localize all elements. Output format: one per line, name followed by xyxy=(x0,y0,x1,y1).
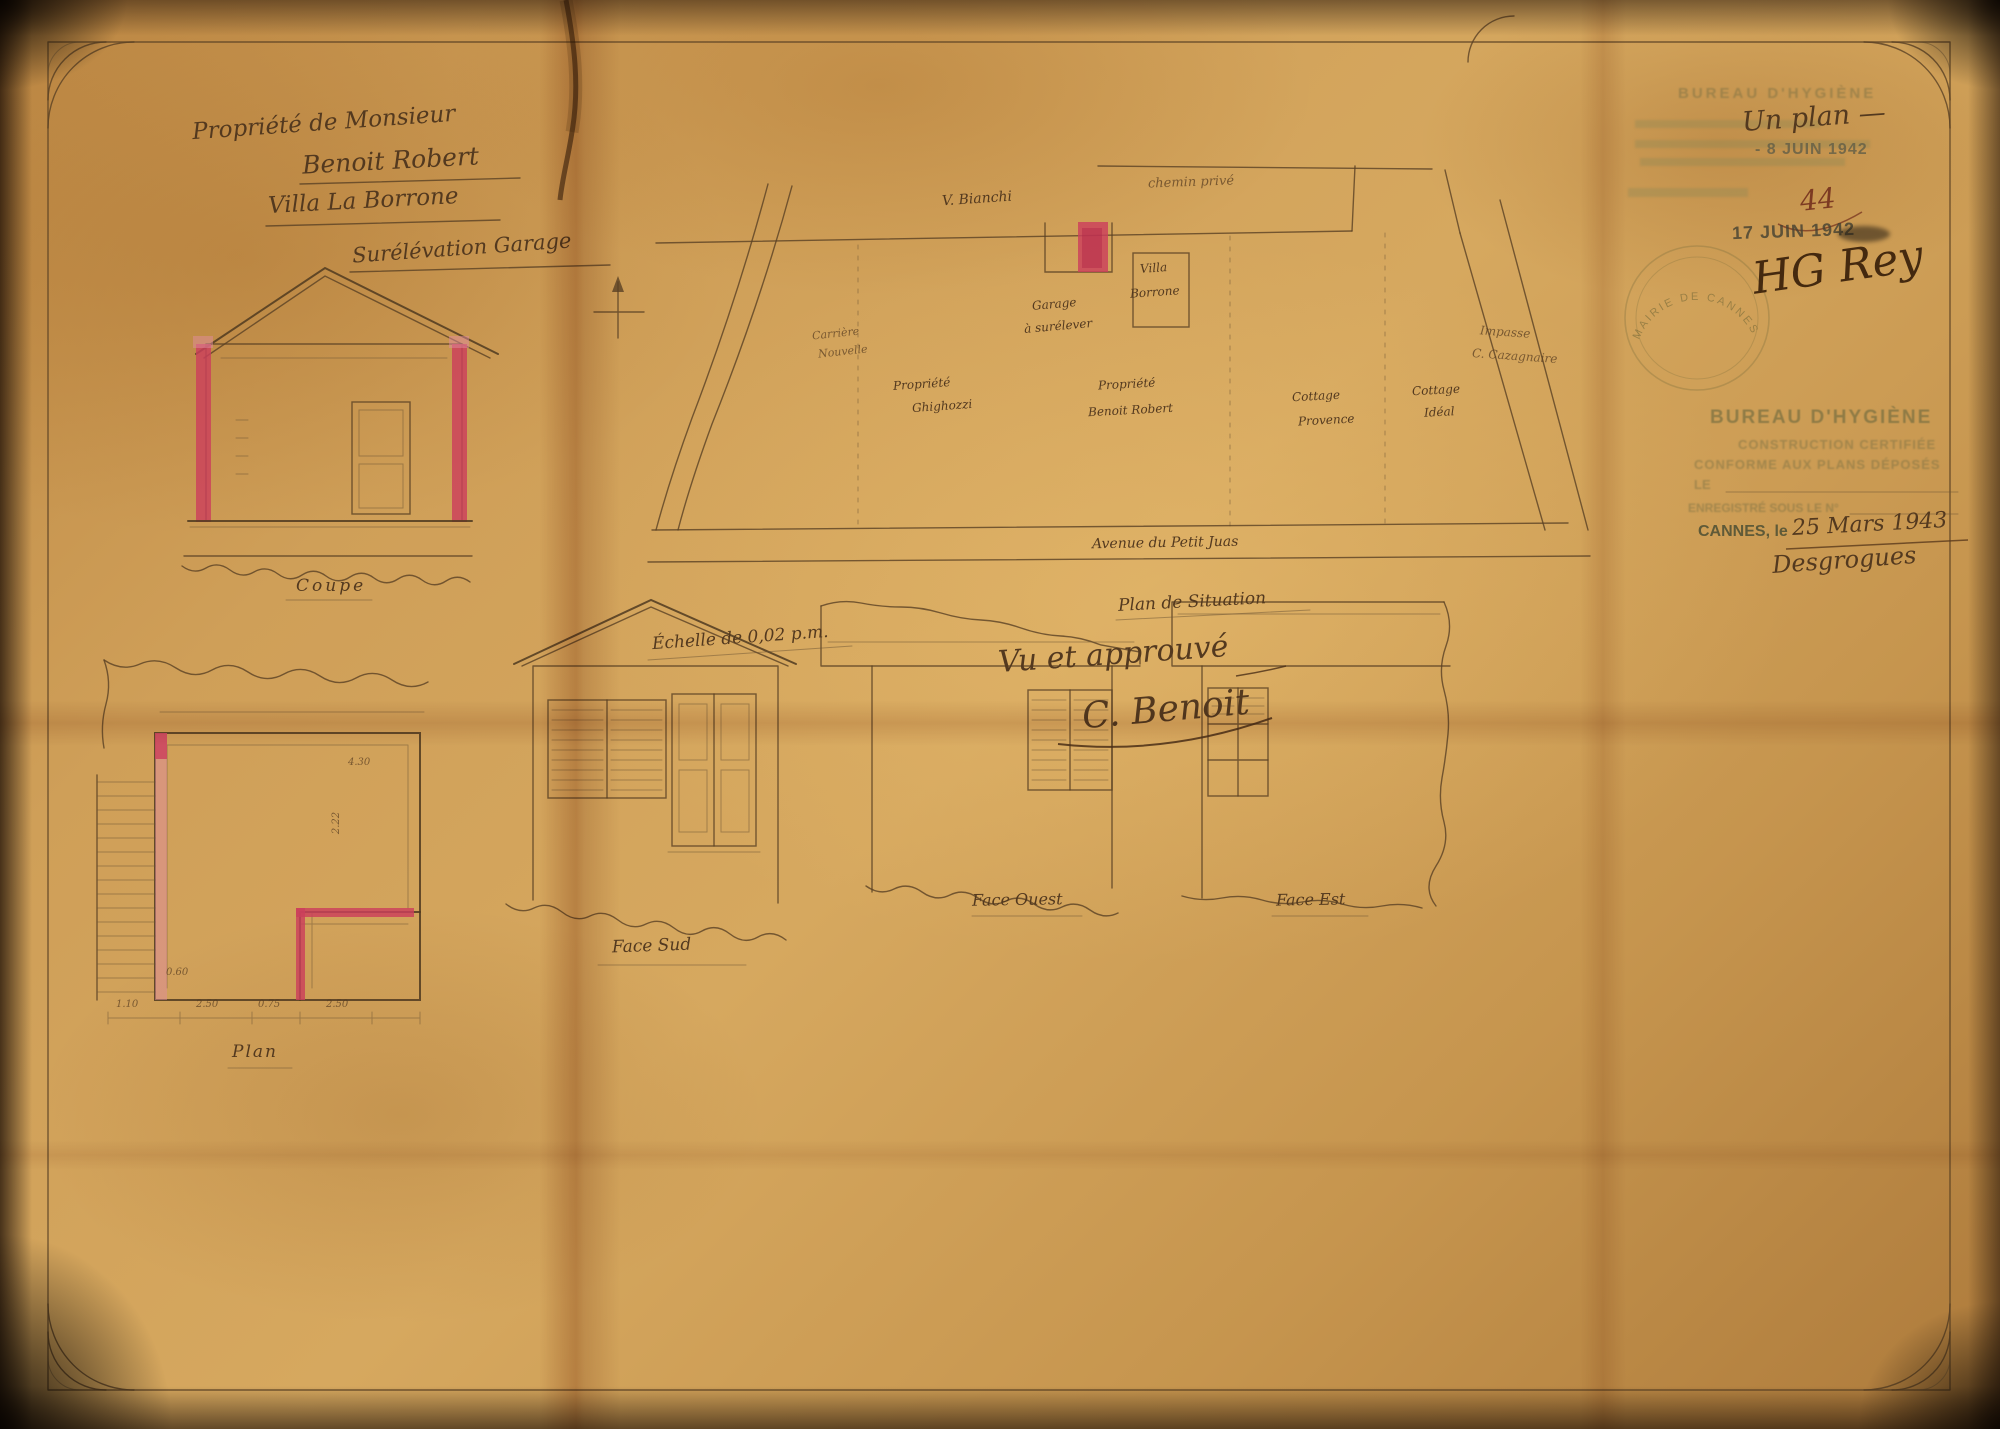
caption-face-sud: Face Sud xyxy=(612,937,692,957)
text-layer: Propriété de Monsieur Benoit Robert Vill… xyxy=(0,0,2000,1429)
certification-signature: Desgrogues xyxy=(1771,543,1917,577)
parcel-left-label-2: Ghighozzi xyxy=(912,398,973,414)
certification-line-3: LE xyxy=(1694,478,1711,491)
title-line-2: Benoit Robert xyxy=(301,143,479,177)
parcel-provence-label-2: Provence xyxy=(1298,413,1355,428)
parcel-provence-label-1: Cottage xyxy=(1292,389,1341,403)
dimension-label: 4.30 xyxy=(348,758,370,768)
certification-title: BUREAU D'HYGIÈNE xyxy=(1710,408,1932,427)
certification-line-2: CONFORME AUX PLANS DÉPOSÉS xyxy=(1694,458,1941,471)
caption-face-est: Face Est xyxy=(1276,891,1346,908)
dimension-label: 0.60 xyxy=(166,968,188,978)
parcel-center-label-1: Propriété xyxy=(1098,377,1156,392)
parcel-ideal-label-2: Idéal xyxy=(1424,405,1455,419)
scale-note: Échelle de 0,02 p.m. xyxy=(652,624,829,653)
dimension-label: 2.50 xyxy=(196,1000,218,1010)
title-line-1: Propriété de Monsieur xyxy=(192,103,457,144)
photographed-architectural-plan: MAIRIE DE CANNES Propriété de Monsieur B… xyxy=(0,0,2000,1429)
manuscript-un-plan: Un plan — xyxy=(1741,99,1886,136)
garage-label-1: Garage xyxy=(1032,296,1077,312)
road-label-bianchi: V. Bianchi xyxy=(942,190,1013,209)
caption-coupe: Coupe xyxy=(296,578,366,595)
garage-label-2: à surélever xyxy=(1024,317,1093,335)
signature-rey: HG Rey xyxy=(1750,234,1926,301)
dimension-label: 2.50 xyxy=(326,1000,348,1010)
faded-stamp-line xyxy=(1628,188,1748,197)
parcel-ideal-label-1: Cottage xyxy=(1412,383,1461,397)
dimension-label: 0.75 xyxy=(258,1000,280,1010)
dimension-label: 2.22 xyxy=(332,812,342,834)
date-stamp-17-juin: 17 JUIN 1942 xyxy=(1732,220,1856,242)
caption-plan: Plan xyxy=(232,1044,278,1061)
certification-city: CANNES, le xyxy=(1698,524,1788,540)
faded-stamp-line xyxy=(1640,158,1845,166)
certification-line-4: ENREGISTRÉ SOUS LE N° xyxy=(1688,502,1839,514)
title-line-4: Surélévation Garage xyxy=(352,230,573,266)
road-label-chemin: chemin privé xyxy=(1148,175,1234,191)
impasse-label-2: C. Cazagnaire xyxy=(1472,347,1558,365)
certification-line-1: CONSTRUCTION CERTIFIÉE xyxy=(1738,438,1936,451)
approval-signature: C. Benoit xyxy=(1081,685,1251,735)
avenue-label: Avenue du Petit Juas xyxy=(1092,535,1239,552)
title-line-3: Villa La Borrone xyxy=(268,185,460,218)
file-number: 44 xyxy=(1799,184,1837,216)
date-stamp-8-juin: - 8 JUIN 1942 xyxy=(1755,142,1868,158)
curved-road-label-1: Carrière xyxy=(812,326,860,342)
parcel-left-label-1: Propriété xyxy=(893,376,951,392)
approval-line: Vu et approuvé xyxy=(997,632,1229,678)
dimension-label: 1.10 xyxy=(116,1000,138,1010)
caption-face-ouest: Face Ouest xyxy=(972,891,1063,909)
impasse-label-1: Impasse xyxy=(1480,324,1531,339)
site-plan-caption: Plan de Situation xyxy=(1118,590,1267,615)
curved-road-label-2: Nouvelle xyxy=(818,343,868,359)
villa-label-2: Borrone xyxy=(1130,284,1180,299)
certification-date: 25 Mars 1943 xyxy=(1792,510,1948,540)
parcel-center-label-2: Benoit Robert xyxy=(1088,402,1173,418)
villa-label-1: Villa xyxy=(1140,261,1168,275)
